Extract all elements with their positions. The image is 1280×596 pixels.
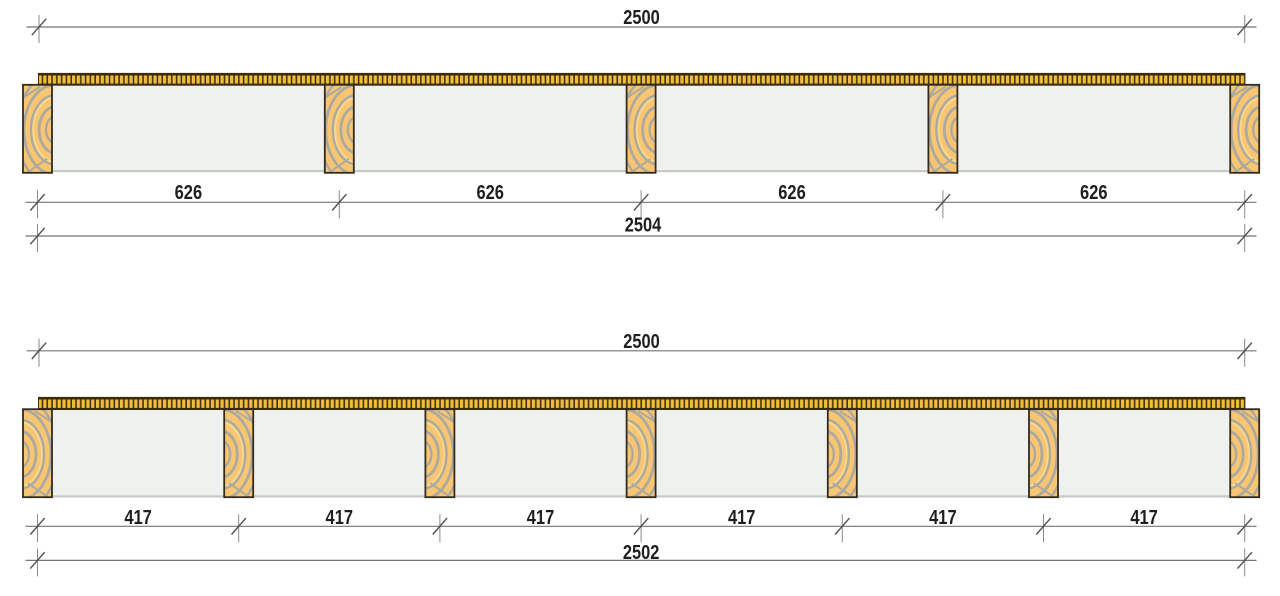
svg-text:417: 417	[527, 506, 555, 529]
svg-text:2502: 2502	[623, 541, 660, 564]
svg-text:626: 626	[175, 181, 203, 204]
svg-text:417: 417	[728, 506, 756, 529]
svg-text:2500: 2500	[623, 6, 660, 29]
svg-text:2504: 2504	[625, 214, 662, 237]
svg-text:626: 626	[476, 181, 504, 204]
svg-text:417: 417	[1130, 506, 1158, 529]
svg-text:417: 417	[124, 506, 152, 529]
svg-text:417: 417	[929, 506, 957, 529]
svg-text:626: 626	[1080, 181, 1108, 204]
svg-text:417: 417	[326, 506, 354, 529]
svg-text:626: 626	[778, 181, 806, 204]
svg-text:2500: 2500	[623, 330, 660, 353]
